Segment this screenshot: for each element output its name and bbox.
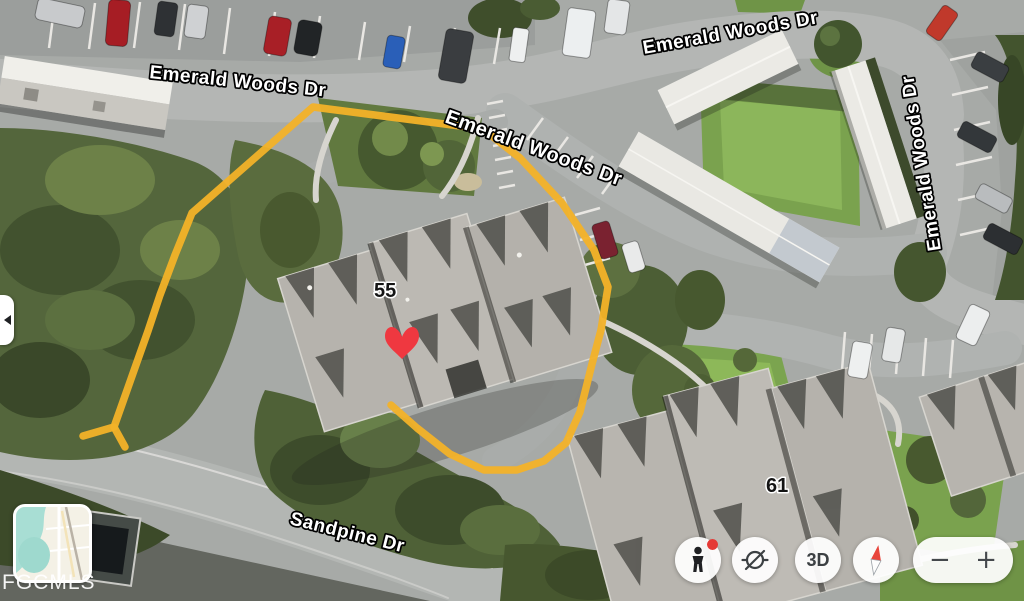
3d-label: 3D <box>806 550 829 571</box>
chevron-left-icon <box>4 315 11 325</box>
pegman-icon <box>687 546 709 574</box>
compass-needle-icon <box>866 544 886 576</box>
compass-button[interactable] <box>853 537 899 583</box>
zoom-in-button[interactable]: + <box>975 547 997 573</box>
minimap-image <box>16 507 89 580</box>
pegman-button[interactable] <box>675 537 721 583</box>
3d-toggle-button[interactable]: 3D <box>795 537 841 583</box>
map-viewport: Emerald Woods Dr Emerald Woods Dr Emeral… <box>0 0 1024 601</box>
zoom-out-button[interactable]: − <box>929 547 951 573</box>
zoom-control: − + <box>913 537 1013 583</box>
rotate-disabled-button[interactable] <box>732 537 778 583</box>
pegman-badge-icon <box>707 539 718 550</box>
gyro-slash-icon <box>741 546 769 574</box>
building-label-55: 55 <box>374 280 396 302</box>
satellite-map[interactable]: Emerald Woods Dr Emerald Woods Dr Emeral… <box>0 0 1024 601</box>
panel-collapse-tab[interactable] <box>0 295 14 345</box>
mls-watermark: FGCMLS <box>2 571 96 595</box>
building-label-61: 61 <box>766 475 788 497</box>
